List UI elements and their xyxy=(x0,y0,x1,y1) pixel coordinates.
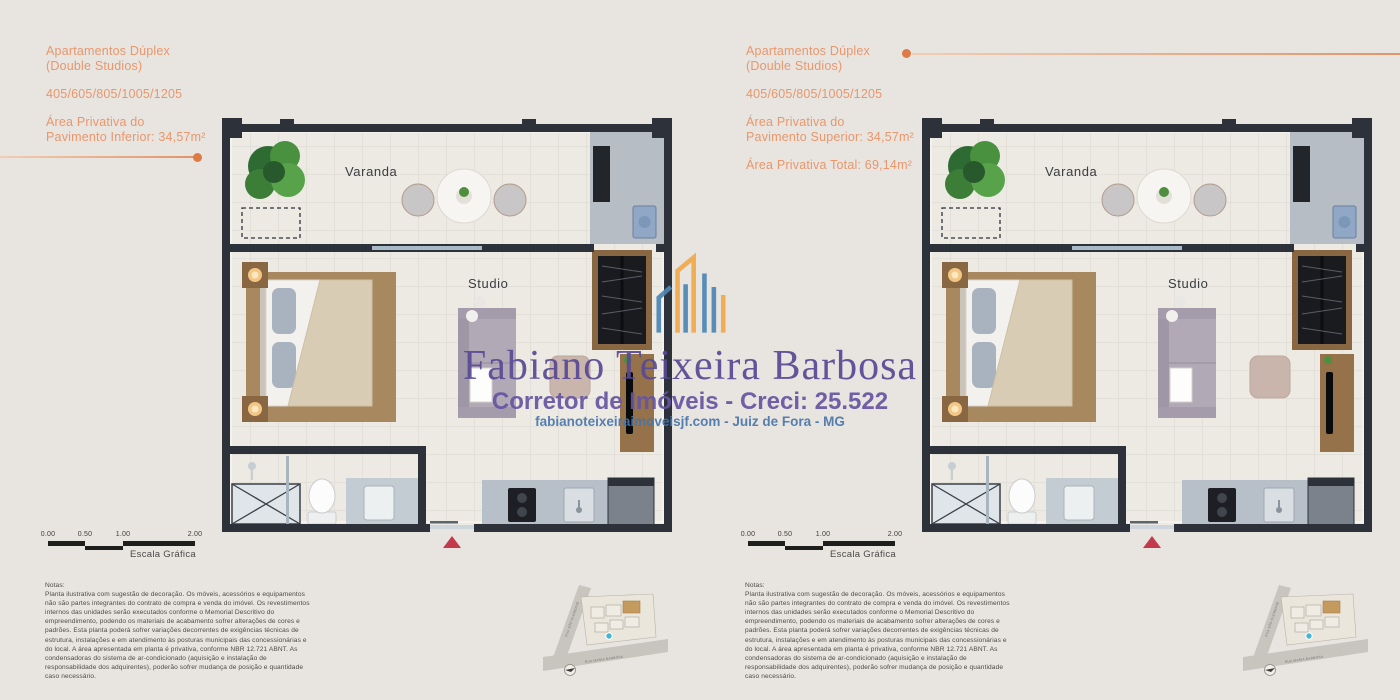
scale-segment xyxy=(785,546,823,551)
scale-tick: 0.50 xyxy=(78,531,92,538)
unit-info-block: Apartamentos Dúplex (Double Studios) 405… xyxy=(46,44,206,145)
scale-tick: 2.00 xyxy=(888,531,902,538)
unit-numbers: 405/605/805/1005/1205 xyxy=(746,87,914,102)
notes-heading: Notas: xyxy=(45,581,313,590)
notes-body: Planta ilustrativa com sugestão de decor… xyxy=(745,590,1013,681)
scale-tick: 2.00 xyxy=(188,531,202,538)
scale-tick: 1.00 xyxy=(116,531,130,538)
site-map xyxy=(543,585,668,683)
page-left-lower-floor: Apartamentos Dúplex (Double Studios) 405… xyxy=(0,0,700,700)
notes-body: Planta ilustrativa com sugestão de decor… xyxy=(45,590,313,681)
scale-segment xyxy=(48,541,85,546)
unit-numbers: 405/605/805/1005/1205 xyxy=(46,87,206,102)
scale-bar-label: Escala Gráfica xyxy=(830,549,896,560)
scale-tick: 0.00 xyxy=(41,531,55,538)
scale-segment xyxy=(748,541,785,546)
notes-heading: Notas: xyxy=(745,581,1013,590)
accent-dot xyxy=(193,153,202,162)
area-value: Pavimento Inferior: 34,57m² xyxy=(46,130,206,145)
unit-type-subtitle: (Double Studios) xyxy=(46,59,206,74)
scale-segment xyxy=(85,546,123,551)
accent-divider xyxy=(0,156,194,158)
accent-divider xyxy=(912,53,1400,55)
accent-dot xyxy=(902,49,911,58)
scale-tick: 0.00 xyxy=(741,531,755,538)
floor-plan-lower xyxy=(222,118,672,550)
scale-tick: 1.00 xyxy=(816,531,830,538)
scale-segment xyxy=(823,541,895,546)
area-total: Área Privativa Total: 69,14m² xyxy=(746,158,914,173)
unit-type-subtitle: (Double Studios) xyxy=(746,59,914,74)
unit-info-block: Apartamentos Dúplex (Double Studios) 405… xyxy=(746,44,914,173)
scale-bar-label: Escala Gráfica xyxy=(130,549,196,560)
notes-block: Notas: Planta ilustrativa com sugestão d… xyxy=(45,581,313,681)
floor-plan-upper xyxy=(922,118,1372,550)
notes-block: Notas: Planta ilustrativa com sugestão d… xyxy=(745,581,1013,681)
site-map xyxy=(1243,585,1368,683)
area-value: Pavimento Superior: 34,57m² xyxy=(746,130,914,145)
scale-bar: 0.00 0.50 1.00 2.00 Escala Gráfica xyxy=(745,531,915,565)
area-label: Área Privativa do xyxy=(46,115,206,130)
unit-type-title: Apartamentos Dúplex xyxy=(746,44,914,59)
scale-bar: 0.00 0.50 1.00 2.00 Escala Gráfica xyxy=(45,531,215,565)
scale-segment xyxy=(123,541,195,546)
page-right-upper-floor: Apartamentos Dúplex (Double Studios) 405… xyxy=(700,0,1400,700)
area-label: Área Privativa do xyxy=(746,115,914,130)
scale-tick: 0.50 xyxy=(778,531,792,538)
unit-type-title: Apartamentos Dúplex xyxy=(46,44,206,59)
